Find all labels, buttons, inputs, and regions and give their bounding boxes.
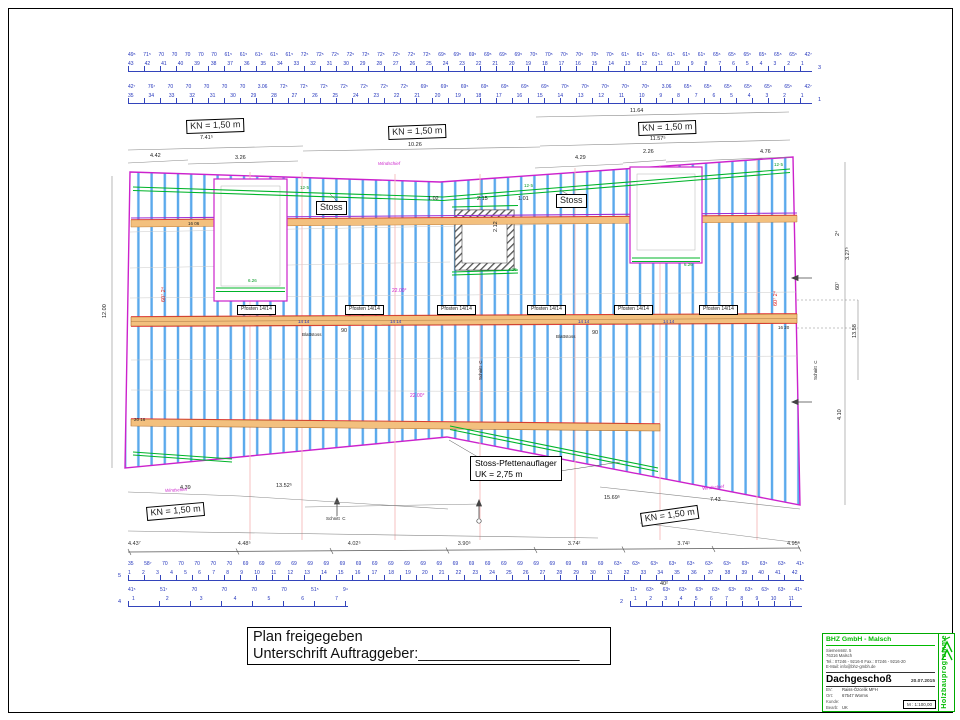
- dim-label: 4.10: [838, 409, 844, 420]
- dim-label: Schnitt C: [479, 360, 484, 380]
- boxed-label: Pfosten 14/14: [437, 305, 476, 315]
- ort-value: 67547 Worms: [842, 693, 868, 699]
- dim-label: 3: [818, 66, 821, 72]
- boxed-label: KN = 1,50 m: [388, 124, 447, 140]
- dim-label: Blattstoss: [556, 335, 576, 340]
- dim-label: 60⁷: [836, 282, 842, 290]
- boxed-label: Pfosten 14/14: [699, 305, 738, 315]
- dim-label: 11.64: [630, 109, 643, 115]
- approval-line-2: Unterschrift Auftraggeber:______________…: [253, 646, 605, 663]
- company-name: BHZ GmbH - Malsch: [826, 636, 935, 646]
- dim-label: 16 06: [188, 222, 199, 227]
- dim-label: 13.58: [853, 324, 859, 338]
- note-line-1: Stoss-Pfettenauflager: [475, 458, 557, 469]
- dim-label: 14 14: [663, 320, 674, 325]
- boxed-label: KN = 1,50 m: [186, 118, 245, 134]
- dim-label: Windschief: [378, 162, 400, 167]
- dim-label: 12·5: [300, 186, 309, 191]
- title-block-logo-strip: Holzbauprogramme: [938, 634, 954, 711]
- dim-label: 2.12: [494, 221, 500, 232]
- bearb-value: UK: [842, 705, 848, 711]
- title-block-main: BHZ GmbH - Malsch Siemensstr. 5 76316 Ma…: [823, 634, 938, 711]
- dim-label: 7.43: [710, 498, 721, 504]
- dim-label: 4.76: [760, 150, 771, 156]
- dim-label: 20 16: [134, 418, 145, 423]
- bottom-strip-spacings-5: 3558⁷70707070706969696969696969696969696…: [128, 562, 804, 567]
- note-line-2: UK = 2,75 m: [475, 469, 557, 480]
- top-tickline-1: [128, 98, 812, 104]
- dim-label: 60⁷ 2⁴: [774, 291, 780, 306]
- dim-label: 4.29: [575, 156, 586, 162]
- dim-label: 3.26: [235, 156, 246, 162]
- bottom-tickline-5: [128, 575, 804, 581]
- dim-label: 16 20: [778, 326, 789, 331]
- dim-label: 60⁷ 2⁴: [162, 287, 168, 302]
- dim-label: 90: [341, 329, 347, 335]
- drawing-sheet: 49⁵71⁵707070707061⁵61⁵61⁵61⁵61⁵72⁵72⁵72⁵…: [0, 0, 960, 720]
- bottom-strip-spacings-2: 11⁵63⁵63⁵63⁵63⁵63⁵63⁵63⁵63⁵63⁵41⁵: [630, 588, 802, 593]
- dim-label: 2: [620, 600, 623, 606]
- dim-label: 3.27⁵: [846, 247, 852, 260]
- dim-label: 5: [118, 574, 121, 580]
- dim-label: 2.26: [643, 150, 654, 156]
- boxed-label: Stoss: [316, 201, 347, 215]
- dim-label: Schnitt C: [814, 360, 819, 380]
- dim-label: Blattstoss: [302, 333, 322, 338]
- top-strip-spacings-3: 49⁵71⁵707070707061⁵61⁵61⁵61⁵61⁵72⁵72⁵72⁵…: [128, 53, 812, 58]
- bottom-tickline-4: [128, 601, 348, 607]
- plan-title: Dachgeschoß: [826, 674, 892, 685]
- dim-label: 13.52⁵: [276, 484, 292, 490]
- bottom-tickline-2: [630, 601, 802, 607]
- dim-label: 22.00°: [392, 289, 407, 294]
- dim-label: 4: [118, 600, 121, 606]
- approval-line-1: Plan freigegeben: [253, 629, 605, 646]
- boxed-label: Stoss: [556, 194, 587, 208]
- dim-label: 4.42: [150, 154, 161, 160]
- dim-label: 90: [592, 331, 598, 337]
- dim-label: 12·5: [524, 184, 533, 189]
- bottom-main-dims: 4.43⁷4.48⁵4.02⁵3.90⁵3.74²3.74¹4.95⁵: [128, 542, 800, 548]
- dim-label: 1: [818, 98, 821, 104]
- dim-label: 12·5: [774, 163, 783, 168]
- plan-date: 20.07.2015: [911, 679, 935, 684]
- dim-label: 2⁴: [836, 231, 842, 236]
- dim-label: 6.26: [684, 263, 693, 268]
- top-tickline-3: [128, 66, 812, 72]
- bearb-label: Bearb:: [826, 705, 842, 711]
- dim-label: 6.26: [248, 279, 257, 284]
- dim-label: 10.26: [408, 143, 422, 149]
- dim-label: 40²: [660, 582, 668, 588]
- dim-label: 15.69⁵: [604, 496, 620, 502]
- dim-label: 1.01: [518, 197, 529, 203]
- dim-label: 1.02: [428, 197, 439, 203]
- boxed-label: Pfosten 14/14: [614, 305, 653, 315]
- logo-vertical-text: Holzbauprogramme: [941, 635, 948, 709]
- bottom-strip-spacings-4: 41⁵51⁷7070707051⁵9⁴: [128, 588, 348, 593]
- boxed-label: Pfosten 14/14: [527, 305, 566, 315]
- dim-label: Schnitt C: [326, 517, 346, 522]
- boxed-label: KN = 1,50 m: [638, 120, 697, 136]
- dim-label: 14 14: [578, 320, 589, 325]
- dim-label: 11.57⁵: [650, 137, 666, 143]
- dim-label: 7.41⁵: [200, 136, 213, 142]
- approval-box: Plan freigegeben Unterschrift Auftraggeb…: [247, 627, 611, 665]
- dim-label: 14 14: [298, 320, 309, 325]
- stoss-pfettenauflager-note: Stoss-Pfettenauflager UK = 2,75 m: [470, 456, 562, 481]
- scale-box: M : 1:100,00: [903, 700, 936, 709]
- company-email: E-Mail: info@bhz-gmbh.de: [826, 664, 935, 669]
- top-strip-spacings-1: 42⁷76⁷70707070703.0672⁵72⁵72⁵72⁵72⁵72⁵72…: [128, 85, 812, 90]
- title-block: BHZ GmbH - Malsch Siemensstr. 5 76316 Ma…: [822, 633, 955, 712]
- dim-label: 2.15: [477, 197, 488, 203]
- dim-label: 22.00°: [410, 394, 425, 399]
- boxed-label: Pfosten 14/14: [345, 305, 384, 315]
- dim-label: 14 14: [390, 320, 401, 325]
- dim-label: 4.26: [508, 268, 517, 273]
- boxed-label: Pfosten 14/14: [237, 305, 276, 315]
- dim-label: 12.00: [103, 304, 109, 318]
